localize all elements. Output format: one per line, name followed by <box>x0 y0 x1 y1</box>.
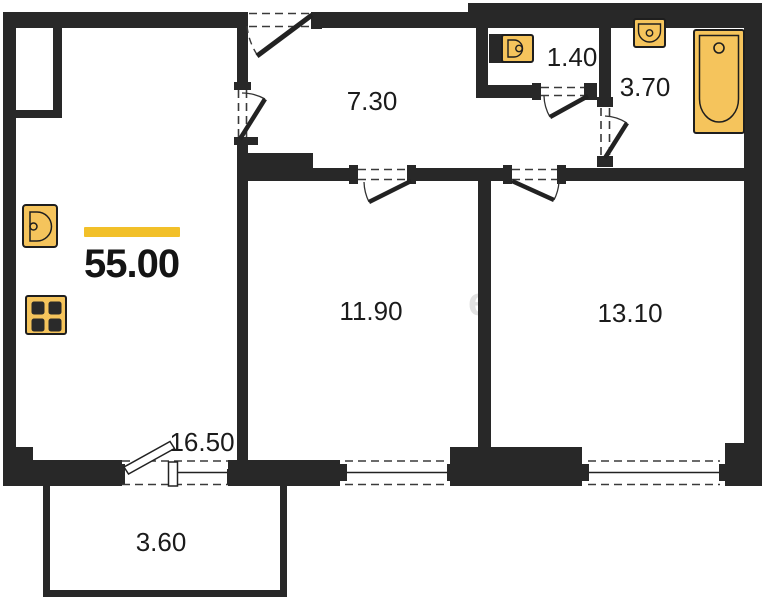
window-room-13-10 <box>588 461 720 485</box>
room-area-label-hallway: 7.30 <box>347 88 398 114</box>
room-area-label-wc: 1.40 <box>547 44 598 70</box>
stove-icon <box>26 296 66 334</box>
kitchen-sink-icon <box>23 205 57 247</box>
bathroom-door <box>601 108 627 158</box>
wc-sink-icon <box>489 34 533 63</box>
total-area-value: 55.00 <box>84 244 180 284</box>
room-11-90-door <box>358 170 411 203</box>
room-area-label-room-13-10: 13.10 <box>597 300 662 326</box>
room-area-label-bathroom: 3.70 <box>620 74 671 100</box>
total-area: 55.00 <box>84 227 180 284</box>
room-area-label-balcony: 3.60 <box>136 529 187 555</box>
living-room-door <box>239 90 266 139</box>
room-13-10-door <box>512 170 559 201</box>
room-area-label-living-kitchen: 16.50 <box>169 429 234 455</box>
wc-door <box>541 88 588 118</box>
room-area-label-room-11-90: 11.90 <box>339 298 402 324</box>
bathtub-icon <box>694 30 744 133</box>
total-area-underline <box>84 227 180 237</box>
entrance-door <box>247 14 312 57</box>
floor-plan: 7.30 1.40 3.70 11.90 13.10 16.50 3.60 55… <box>0 0 764 600</box>
bath-sink-icon <box>634 19 665 47</box>
window-room-11-90 <box>345 461 449 485</box>
